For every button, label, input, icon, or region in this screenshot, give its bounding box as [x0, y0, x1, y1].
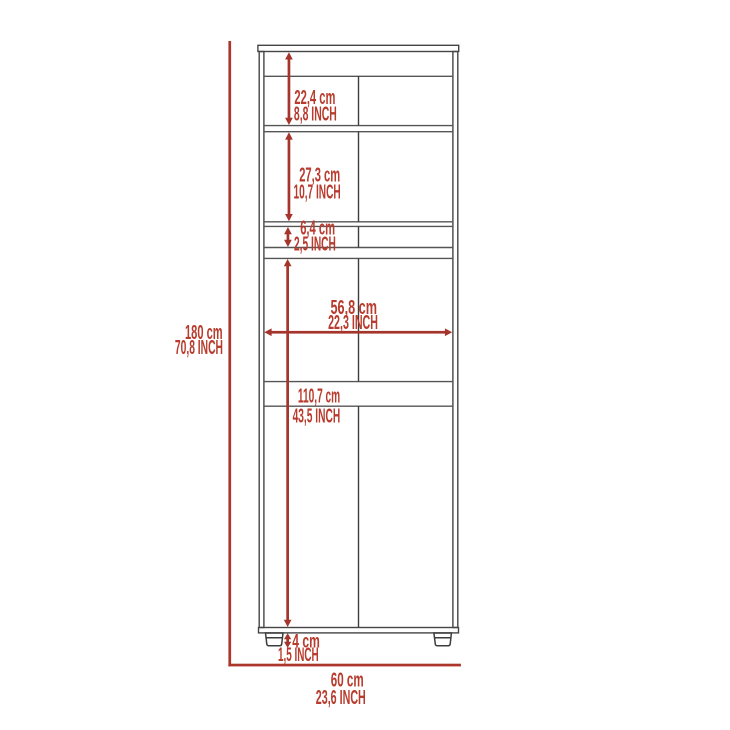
svg-text:10,7 INCH: 10,7 INCH [294, 181, 341, 203]
svg-text:43,5 INCH: 43,5 INCH [293, 405, 341, 427]
svg-text:22,3 INCH: 22,3 INCH [328, 312, 378, 334]
svg-text:8,8 INCH: 8,8 INCH [294, 104, 337, 126]
svg-text:23,6 INCH: 23,6 INCH [316, 687, 366, 709]
svg-text:110,7 cm: 110,7 cm [298, 386, 340, 408]
svg-text:1,5 INCH: 1,5 INCH [278, 645, 319, 666]
svg-text:70,8 INCH: 70,8 INCH [175, 337, 223, 359]
svg-text:2,5 INCH: 2,5 INCH [294, 233, 336, 255]
